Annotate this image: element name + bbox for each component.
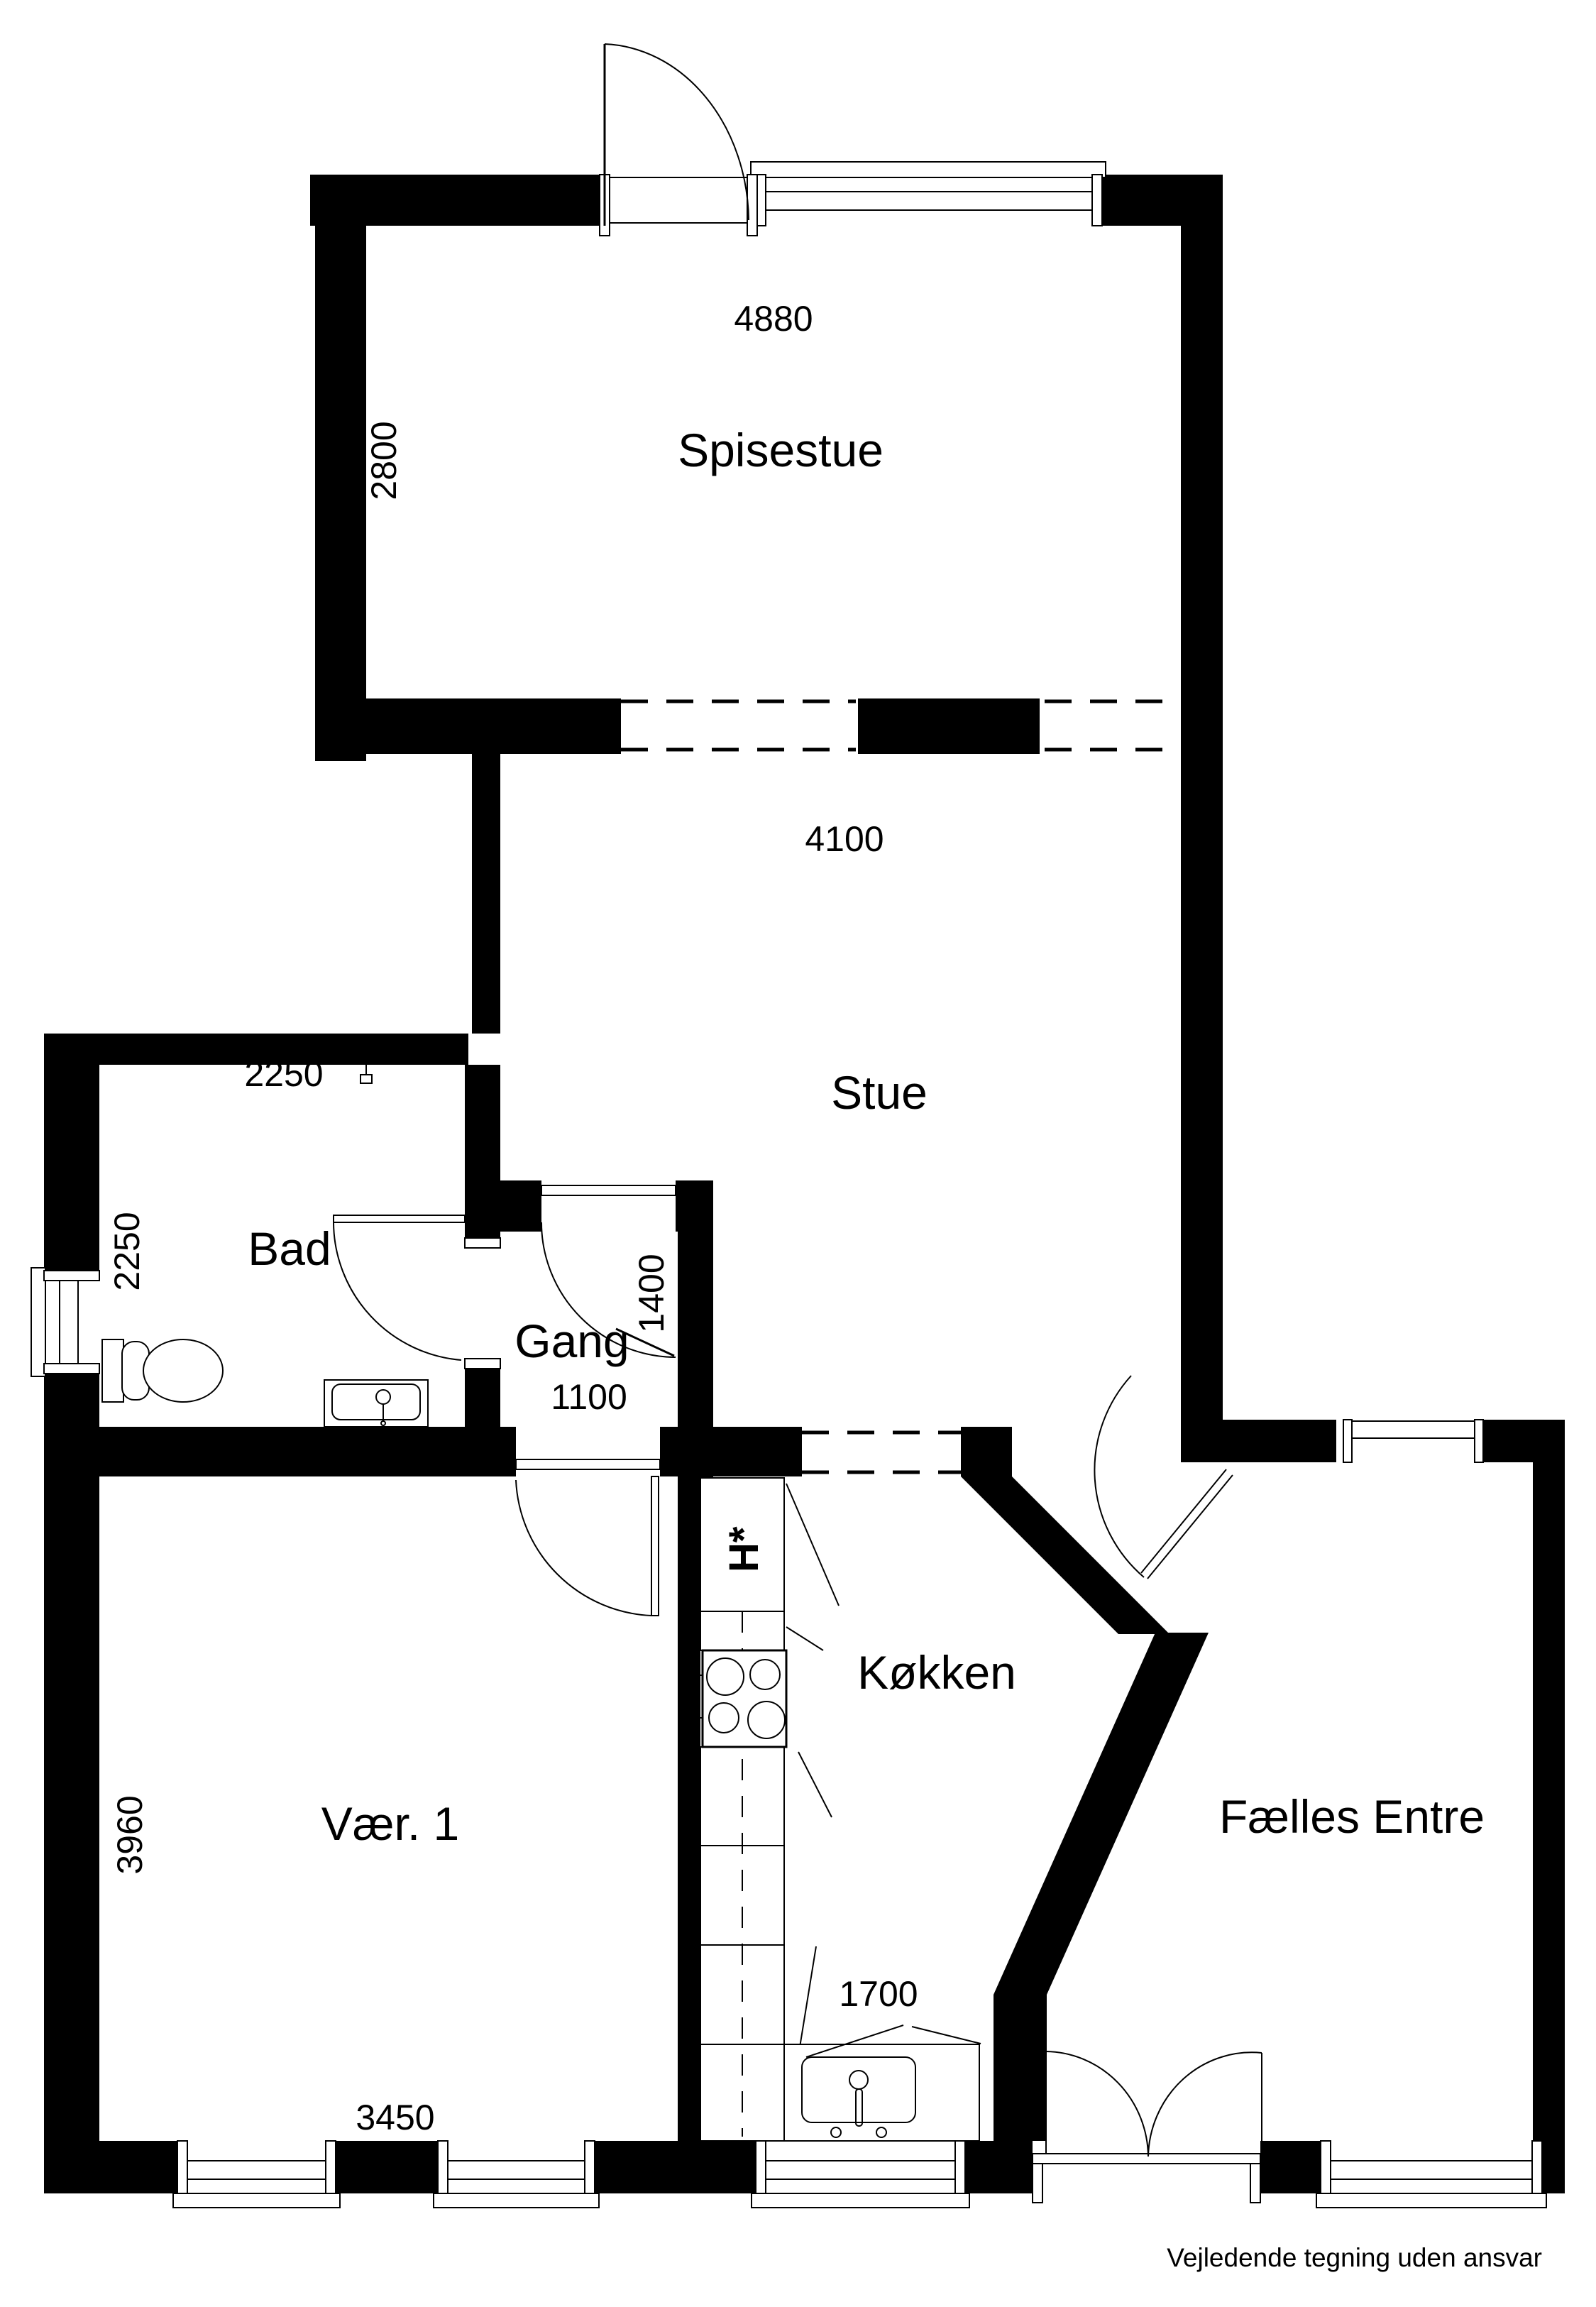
floor-plan-page: Spisestue Stue Bad Gang Køkken Vær. 1 Fæ…	[0, 0, 1596, 2307]
door-gang-vaer1	[516, 1459, 660, 1616]
window-spisestue-top	[751, 162, 1106, 226]
dashed-opening-spisestue-stue-left	[621, 701, 856, 750]
room-label-vaer1: Vær. 1	[321, 1797, 459, 1850]
room-label-gang: Gang	[514, 1315, 629, 1367]
door-gang-bad	[334, 1215, 500, 1369]
door-entrance-double	[1033, 2051, 1262, 2203]
room-label-koekken: Køkken	[857, 1646, 1016, 1699]
dashed-opening-spisestue-stue-right	[1045, 701, 1184, 750]
dim-1400: 1400	[632, 1254, 671, 1332]
diagonal-wall-kitchen	[961, 1476, 1170, 1634]
dim-2800: 2800	[364, 421, 404, 500]
room-label-stue: Stue	[831, 1066, 928, 1119]
bathroom-sink	[324, 1380, 428, 1427]
kitchen-sink	[784, 2044, 979, 2141]
door-spisestue-exterior	[600, 44, 757, 236]
room-label-bad: Bad	[248, 1222, 331, 1275]
toilet	[102, 1339, 223, 1402]
window-koekken-bottom	[752, 2141, 969, 2208]
dim-4880: 4880	[734, 299, 813, 339]
dim-3960: 3960	[110, 1795, 150, 1874]
footer-disclaimer: Vejledende tegning uden ansvar	[1167, 2243, 1542, 2272]
stove	[694, 1650, 786, 1747]
window-faelles-entre-bottom	[1316, 2141, 1546, 2208]
dim-2250-horizontal: 2250	[244, 1054, 323, 1094]
room-label-spisestue: Spisestue	[678, 424, 884, 476]
kitchen-counter	[700, 1478, 839, 2141]
dim-2250-vertical: 2250	[107, 1212, 147, 1291]
dim-4100: 4100	[805, 819, 884, 859]
dim-1700: 1700	[839, 1974, 918, 2014]
dim-1100: 1100	[551, 1377, 627, 1417]
room-label-faelles-entre: Fælles Entre	[1219, 1790, 1485, 1843]
window-vaer1-bottom-right	[434, 2141, 599, 2208]
walls	[44, 175, 1565, 2193]
floor-plan-drawing: Spisestue Stue Bad Gang Køkken Vær. 1 Fæ…	[0, 0, 1596, 2307]
window-faelles-entre-top	[1343, 1420, 1483, 1462]
window-bad-left	[31, 1268, 99, 1376]
fridge-marker-symbol: H*	[721, 1526, 767, 1572]
diagonal-wall-entre	[994, 1633, 1209, 1995]
window-vaer1-bottom-left	[173, 2141, 340, 2208]
dashed-opening-stue-koekken	[802, 1432, 961, 1472]
dim-3450: 3450	[356, 2098, 434, 2137]
